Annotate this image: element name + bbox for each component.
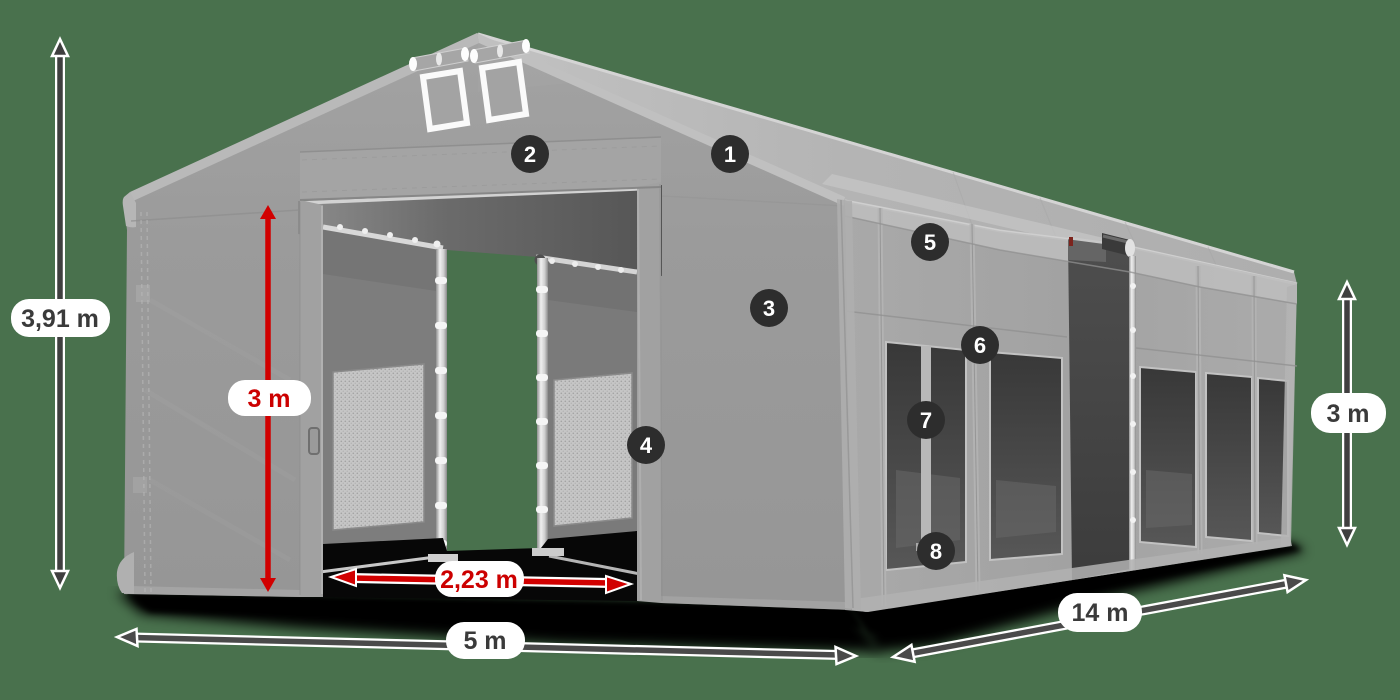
svg-text:1: 1 [724,142,736,167]
svg-text:3,91 m: 3,91 m [21,305,99,333]
svg-text:4: 4 [640,433,653,458]
svg-text:3 m: 3 m [247,385,290,413]
svg-text:14 m: 14 m [1072,599,1129,627]
svg-text:5 m: 5 m [463,627,506,655]
svg-text:8: 8 [930,539,942,564]
svg-text:3: 3 [763,296,775,321]
svg-text:7: 7 [920,408,932,433]
svg-text:2: 2 [524,142,536,167]
svg-text:2,23 m: 2,23 m [440,566,518,594]
svg-text:6: 6 [974,333,986,358]
svg-text:5: 5 [924,230,936,255]
svg-text:3 m: 3 m [1326,400,1369,428]
